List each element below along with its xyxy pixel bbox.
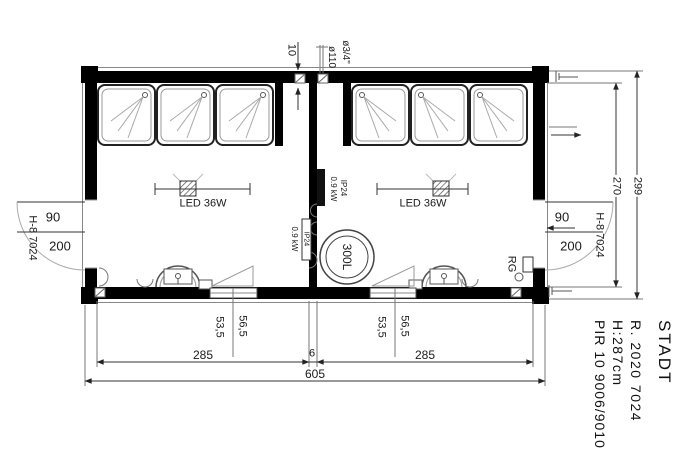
washbasin-right xyxy=(409,266,466,289)
ceiling-light-right xyxy=(377,174,468,196)
dim-partition-label: 6 xyxy=(309,349,315,360)
door-right-type-label: H-8 7024 xyxy=(594,212,605,257)
shower-trays-right xyxy=(343,83,527,146)
dim-room-right-width-label: 285 xyxy=(415,349,435,361)
heater-right-ip-label: IP24 xyxy=(339,180,347,196)
title-height: H:287cm xyxy=(610,320,626,387)
dim-exterior-depth-label: 299 xyxy=(632,175,643,197)
heater-left-kw-label: 0.9 kW xyxy=(290,227,298,252)
wall-hooks xyxy=(99,204,478,287)
shower-trays-left xyxy=(98,83,283,146)
title-ral-color: R. 2020 7024 xyxy=(628,320,644,422)
rg-label: RG xyxy=(506,256,517,273)
door-left-height-label: 200 xyxy=(49,240,71,253)
title-project: STADT xyxy=(654,320,674,384)
dim-window-right-a-label: 53,5 xyxy=(376,316,387,337)
heater-right-room xyxy=(317,169,325,206)
washbasin-left xyxy=(156,266,212,289)
ceiling-light-left xyxy=(155,174,250,196)
dim-depth xyxy=(547,71,643,299)
plan-linework xyxy=(0,0,683,473)
rg-box xyxy=(515,257,533,281)
door-right-width-label: 90 xyxy=(555,211,569,224)
flow-arrow xyxy=(549,127,581,135)
dim-room-left-width-label: 285 xyxy=(193,349,213,361)
boiler-label: 300L xyxy=(341,244,353,271)
water-pipe-label: ø3/4" xyxy=(340,40,350,64)
dim-window-right-b-label: 56,5 xyxy=(399,315,410,336)
dim-window-left-a-label: 53,5 xyxy=(214,316,225,337)
door-left-width-label: 90 xyxy=(46,211,60,224)
led-label-left: LED 36W xyxy=(179,199,226,210)
led-label-right: LED 36W xyxy=(399,199,446,210)
dim-window-left-b-label: 56,5 xyxy=(237,315,248,336)
title-material: PIR 10 9006/9010 xyxy=(592,320,608,449)
floor-plan: 10 ø110 ø3/4" LED 36W LED 36W IP24 0.9 k… xyxy=(0,0,683,473)
door-left-type-label: H-8 7024 xyxy=(27,215,38,260)
dim-wall-thickness-label: 10 xyxy=(286,44,297,56)
dim-interior-depth-label: 270 xyxy=(611,175,622,197)
heater-left-ip-label: IP24 xyxy=(303,232,310,246)
dim-total-width-label: 605 xyxy=(305,368,325,380)
drain-pipe-label: ø110 xyxy=(326,46,336,68)
heater-right-kw-label: 0.9 kW xyxy=(329,177,337,202)
door-right-height-label: 200 xyxy=(560,240,582,253)
earth-symbols xyxy=(549,71,578,297)
